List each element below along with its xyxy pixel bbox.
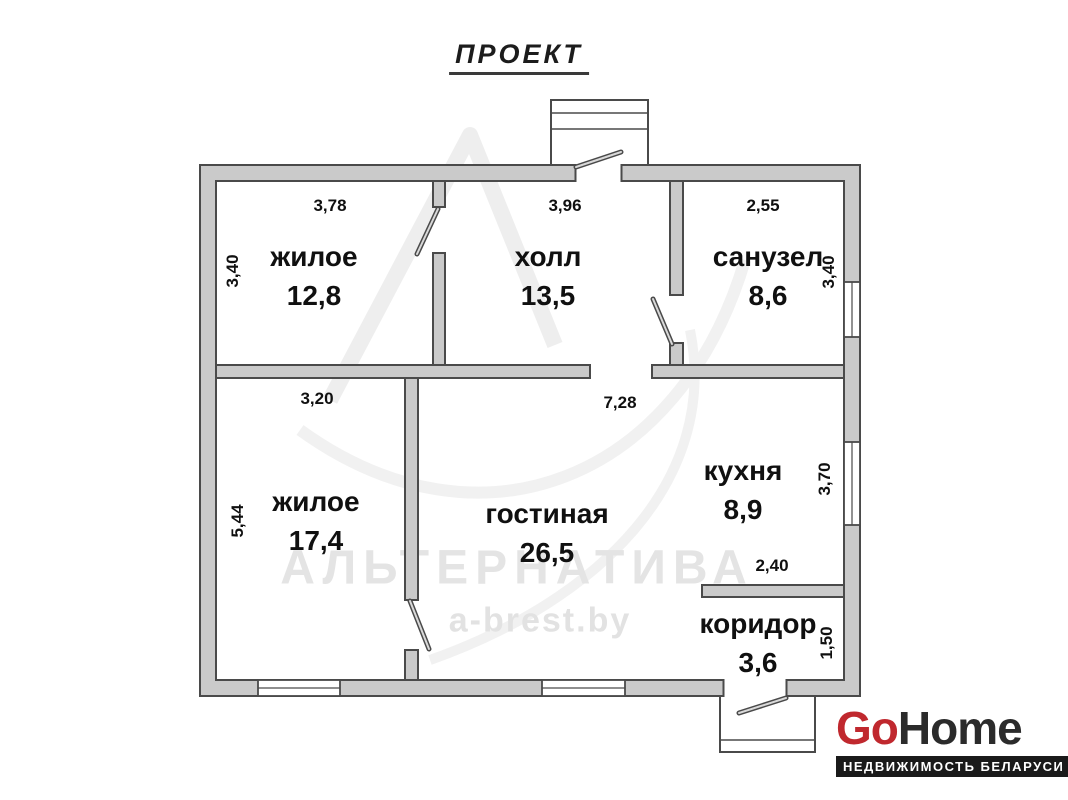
room-label-hall: холл 13,5	[515, 237, 582, 315]
labels-layer: жилое 12,8 холл 13,5 санузел 8,6 жилое 1…	[0, 0, 1068, 800]
room-label-lounge: гостиная 26,5	[485, 494, 608, 572]
gohome-home-text: Home	[898, 702, 1022, 754]
dim-right-bathroom: 3,40	[819, 255, 839, 288]
room-name: санузел	[713, 237, 824, 276]
dim-mid-living2: 3,20	[300, 389, 333, 409]
gohome-go-text: Go	[836, 702, 898, 754]
dim-mid-lounge: 7,28	[603, 393, 636, 413]
room-name: холл	[515, 237, 582, 276]
dim-top-living1: 3,78	[313, 196, 346, 216]
room-area: 3,6	[699, 643, 816, 682]
room-name: гостиная	[485, 494, 608, 533]
dim-right-kitchen: 3,70	[815, 462, 835, 495]
room-name: жилое	[272, 482, 359, 521]
room-area: 8,6	[713, 276, 824, 315]
room-area: 8,9	[704, 490, 783, 529]
room-label-kitchen: кухня 8,9	[704, 451, 783, 529]
room-area: 26,5	[485, 533, 608, 572]
room-area: 13,5	[515, 276, 582, 315]
dim-top-hall: 3,96	[548, 196, 581, 216]
gohome-wordmark: GoHome	[836, 704, 1068, 752]
room-name: жилое	[270, 237, 357, 276]
room-area: 12,8	[270, 276, 357, 315]
room-name: коридор	[699, 604, 816, 643]
gohome-logo: GoHome НЕДВИЖИМОСТЬ БЕЛАРУСИ	[836, 704, 1068, 777]
room-area: 17,4	[272, 521, 359, 560]
dim-right-corridor: 1,50	[817, 626, 837, 659]
dim-left-living2: 5,44	[228, 504, 248, 537]
room-label-corridor: коридор 3,6	[699, 604, 816, 682]
room-label-bathroom: санузел 8,6	[713, 237, 824, 315]
dim-kitchen-width: 2,40	[755, 556, 788, 576]
room-label-living2: жилое 17,4	[272, 482, 359, 560]
room-label-living1: жилое 12,8	[270, 237, 357, 315]
floorplan-page: ПРОЕКТ АЛЬТЕРНАТИВА a-brest.by	[0, 0, 1068, 800]
room-name: кухня	[704, 451, 783, 490]
dim-top-bathroom: 2,55	[746, 196, 779, 216]
gohome-tagline: НЕДВИЖИМОСТЬ БЕЛАРУСИ	[836, 756, 1068, 777]
dim-left-living1: 3,40	[223, 254, 243, 287]
